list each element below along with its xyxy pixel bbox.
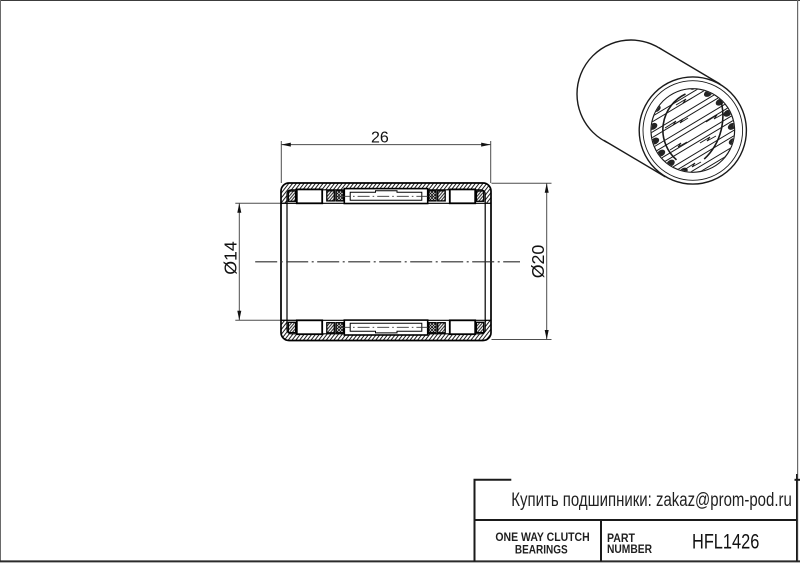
svg-text:Купить подшипники: zakaz@prom-: Купить подшипники: zakaz@prom-pod.ru [511, 490, 792, 511]
svg-text:HFL1426: HFL1426 [692, 531, 759, 554]
svg-text:Ø20: Ø20 [528, 245, 548, 279]
svg-text:26: 26 [371, 130, 389, 147]
svg-text:Ø14: Ø14 [221, 241, 241, 275]
svg-text:NUMBER: NUMBER [607, 542, 652, 556]
svg-text:BEARINGS: BEARINGS [515, 542, 568, 556]
